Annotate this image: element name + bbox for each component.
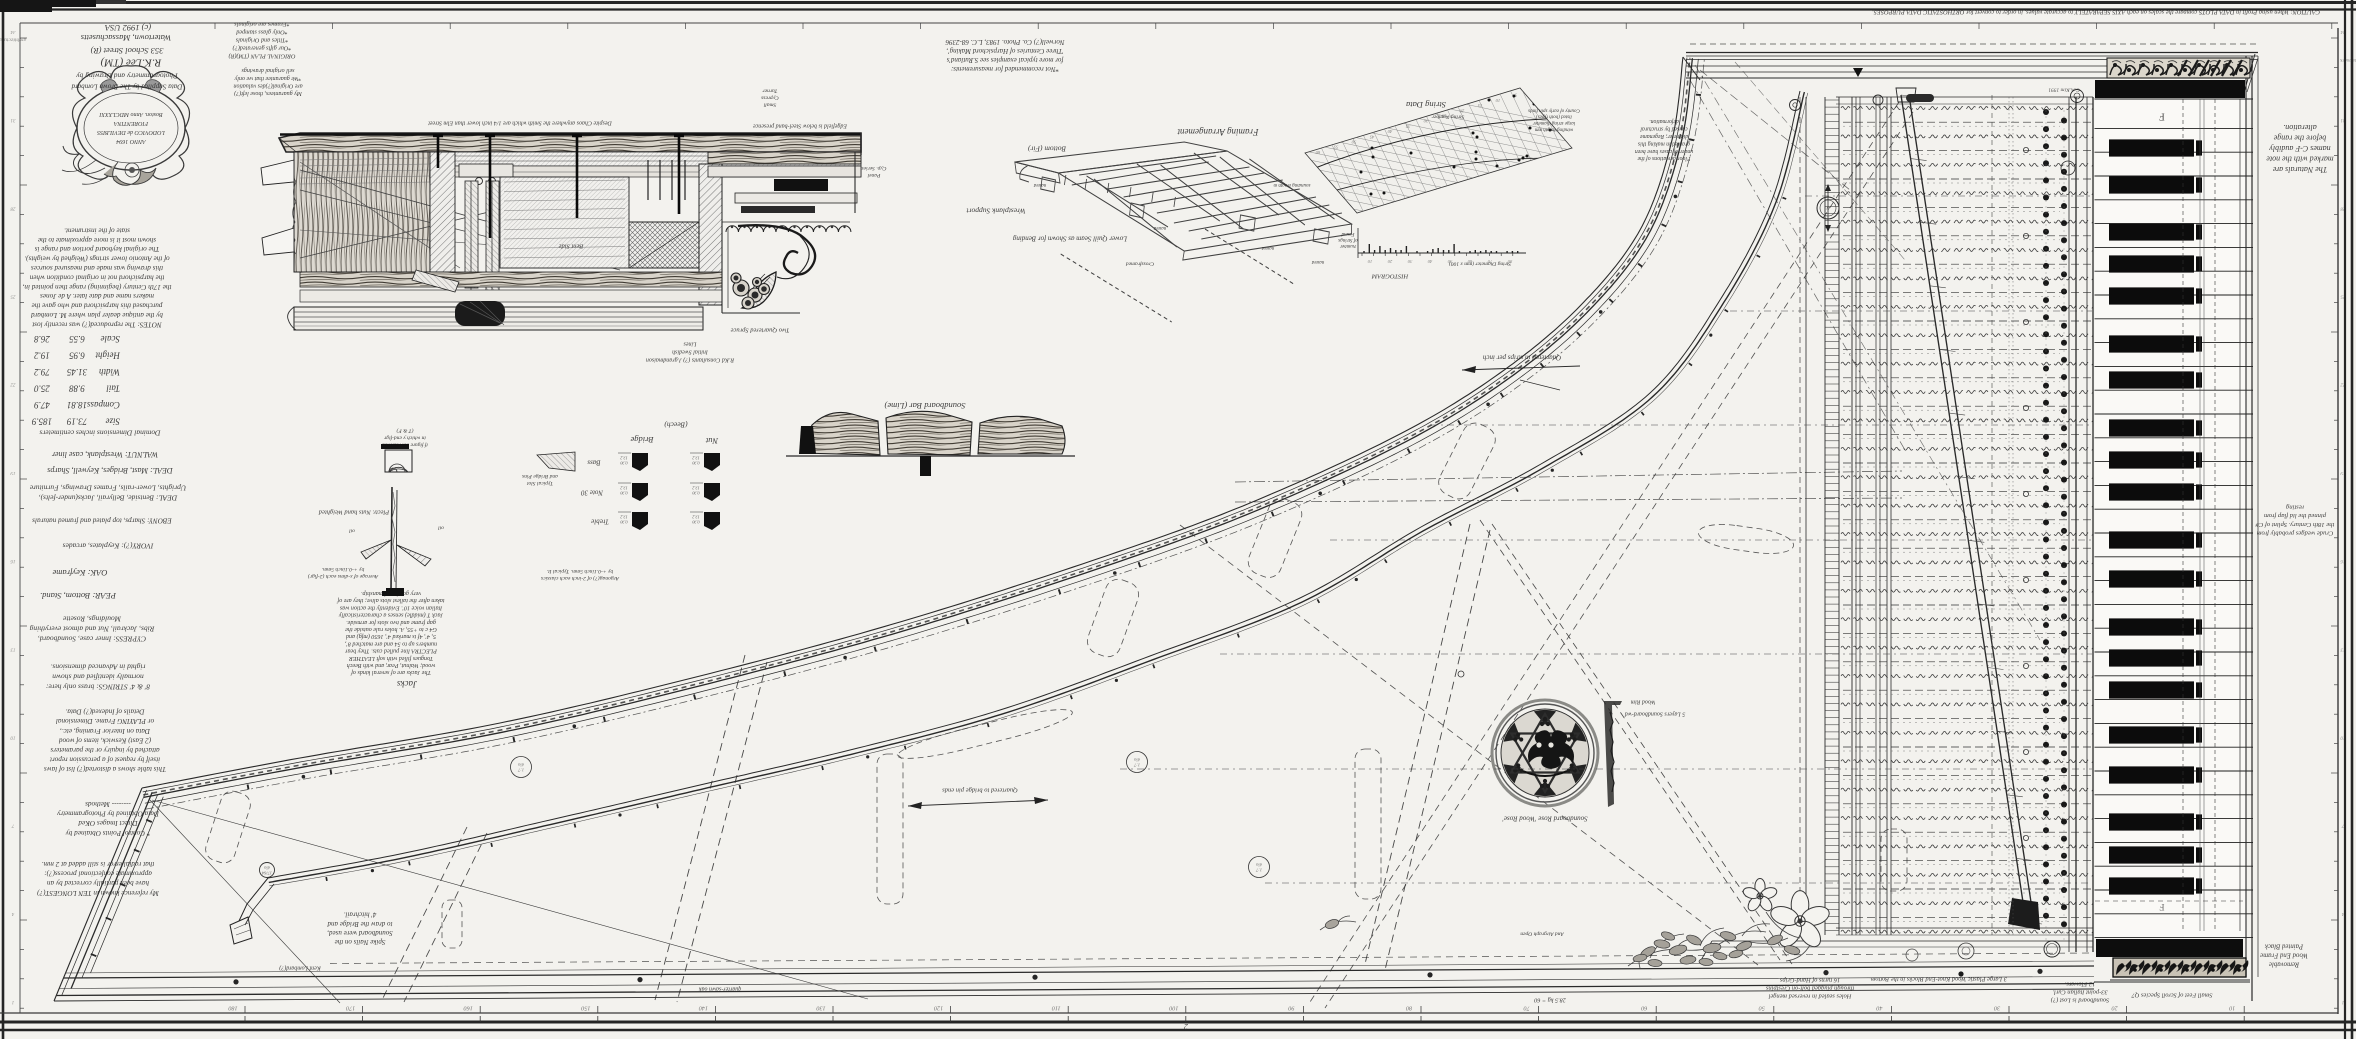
svg-text:R.Kd Consultants (?) J.grandm: R.Kd Consultants (?) J.grandmaison <box>646 357 735 364</box>
svg-text:Tongues filled with soft LEATH: Tongues filled with soft LEATHER <box>349 655 433 662</box>
svg-text:Soundboard were used,: Soundboard were used, <box>327 929 393 937</box>
svg-text:that radial error is still: that radial error is still added at 2 mm… <box>42 860 155 868</box>
svg-text:Cypress: Cypress <box>761 95 779 101</box>
svg-text:R.K.Lee (TM): R.K.Lee (TM) <box>100 56 162 68</box>
svg-text:60: 60 <box>1640 1005 1647 1012</box>
svg-text:Ribs, Jackrail, Nut and almost: Ribs, Jackrail, Nut and almost everythin… <box>29 624 155 633</box>
svg-text:Note 30: Note 30 <box>581 488 604 496</box>
svg-text:dia: dia <box>517 762 524 767</box>
svg-text:12 Flowers.: 12 Flowers. <box>2064 981 2095 988</box>
svg-text:NOTES: The reproduced(?) was: NOTES: The reproduced(?) was recently lo… <box>31 320 163 328</box>
svg-text:10: 10 <box>1367 259 1372 264</box>
svg-text:Wood Rim: Wood Rim <box>1630 699 1655 705</box>
svg-text:large string diameter: large string diameter <box>1533 120 1575 125</box>
svg-text:Bridge: Bridge <box>630 435 653 445</box>
svg-text:Crude wedges probably from: Crude wedges probably from <box>2256 529 2333 536</box>
svg-text:Edgefield is below Steel-band: Edgefield is below Steel-band presence <box>753 123 848 130</box>
svg-text:Small Feet of Scroll Speci: Small Feet of Scroll Species Q7 <box>2131 992 2213 999</box>
svg-text:25: 25 <box>1441 114 1446 119</box>
svg-text:*Frames are originals: *Frames are originals <box>234 21 290 28</box>
svg-text:Lines: Lines <box>683 341 698 347</box>
svg-text:Treble: Treble <box>591 517 609 525</box>
svg-text:LODOVICO de DEVILBISS: LODOVICO de DEVILBISS <box>97 129 166 135</box>
svg-text:Found: Found <box>1341 231 1356 236</box>
svg-text:25.0: 25.0 <box>34 383 50 393</box>
svg-text:Wood End Frame: Wood End Frame <box>2260 951 2308 958</box>
svg-text:before the range: before the range <box>2273 134 2326 143</box>
svg-text:-------- Methods: -------- Methods <box>85 800 131 808</box>
svg-text:nailed: nailed <box>1033 182 1046 187</box>
svg-text:13.2: 13.2 <box>620 486 627 491</box>
svg-text:G.A.Kim 1991: G.A.Kim 1991 <box>2048 87 2080 93</box>
svg-text:Cyp. Series: Cyp. Series <box>861 165 886 171</box>
svg-text:16: 16 <box>2340 558 2346 563</box>
svg-text:13.2: 13.2 <box>620 515 627 520</box>
svg-text:34: 34 <box>2340 29 2346 34</box>
svg-text:makers name and date later. A: makers name and date later. A de Jones <box>40 292 154 300</box>
svg-text:Average of x-dims each (2-figr: Average of x-dims each (2-figr) <box>308 573 379 580</box>
svg-text:40: 40 <box>1875 1005 1882 1012</box>
svg-text:oil: oil <box>349 528 355 534</box>
svg-text:5, 4', 4f is marked 4', 1650 (: 5, 4', 4f is marked 4', 1650 (mfg) and <box>345 633 436 640</box>
svg-text:13.2: 13.2 <box>692 486 699 491</box>
svg-text:50: 50 <box>1447 259 1452 264</box>
svg-text:Crossframed: Crossframed <box>1126 261 1154 268</box>
svg-text:Tail: Tail <box>106 383 120 393</box>
svg-text:28.5 kg = 60: 28.5 kg = 60 <box>1533 997 1566 1004</box>
svg-text:pinned the lid flap from: pinned the lid flap from <box>2264 512 2327 519</box>
svg-text:80: 80 <box>1507 259 1512 264</box>
svg-text:13: 13 <box>2340 646 2346 651</box>
svg-text:under of cases have been: under of cases have been <box>1635 148 1693 155</box>
svg-text:60: 60 <box>1315 150 1320 155</box>
svg-text:normally identified and sho: normally identified and shown <box>52 672 144 681</box>
svg-text:This table shows a distort: This table shows a distorted(?) list of … <box>44 765 166 773</box>
svg-text:Quartered in strips per inch: Quartered in strips per inch <box>1482 353 1561 361</box>
svg-text:180: 180 <box>227 1005 237 1012</box>
svg-text:35: 35 <box>1405 124 1410 129</box>
svg-text:160: 160 <box>463 1005 473 1012</box>
svg-text:40: 40 <box>1387 129 1392 134</box>
svg-text:2: 2 <box>1184 1022 1188 1031</box>
svg-text:20: 20 <box>2111 1005 2118 1012</box>
svg-text:13.2: 13.2 <box>692 456 699 461</box>
svg-text:55: 55 <box>1333 145 1338 150</box>
svg-text:Bass: Bass <box>587 458 601 466</box>
svg-text:names C-F audibly: names C-F audibly <box>2269 144 2331 153</box>
svg-text:are Original(?)des valuation: are Original(?)des valuation <box>233 82 302 89</box>
svg-text:(2 East) Keswick, items of: (2 East) Keswick, items of wood <box>58 736 151 744</box>
svg-text:15: 15 <box>1477 103 1482 108</box>
svg-text:DEAL: Mast, Bridges, Keywell,: DEAL: Mast, Bridges, Keywell, Sharps <box>47 466 174 475</box>
svg-text:to draw the Bridge and: to draw the Bridge and <box>327 920 392 928</box>
svg-text:rightd in Advanced dimensio: rightd in Advanced dimensions. <box>50 662 145 671</box>
svg-text:*Only glass stamped: *Only glass stamped <box>235 29 287 36</box>
svg-text:18.81: 18.81 <box>67 400 87 410</box>
svg-text:String Diameter (mm x 100): String Diameter (mm x 100) <box>1449 261 1511 268</box>
svg-text:30: 30 <box>1407 259 1412 264</box>
svg-text:*Our gifts generated(?): *Our gifts generated(?) <box>233 45 292 52</box>
svg-text:shown most it is more appr: shown most it is more approximate to the <box>37 236 156 244</box>
svg-text:Scale: Scale <box>101 334 121 344</box>
svg-text:and Bridge Pins: and Bridge Pins <box>522 473 558 479</box>
svg-text:120: 120 <box>933 1005 943 1012</box>
svg-text:WALNUT: Wrestplank, case lin: WALNUT: Wrestplank, case liner <box>51 450 158 459</box>
svg-text:Kent Lombard(?): Kent Lombard(?) <box>279 965 322 972</box>
svg-text:Norwell(?) Co. Photo. 1983, L: Norwell(?) Co. Photo. 1983, L.C. 68-2396 <box>945 38 1066 46</box>
svg-text:listed (both types): listed (both types) <box>1536 114 1572 119</box>
svg-text:diameter; Regename: diameter; Regename <box>1640 133 1689 139</box>
svg-text:79.2: 79.2 <box>34 367 50 377</box>
svg-text:Soundboard Bar (Lime): Soundboard Bar (Lime) <box>884 401 965 411</box>
svg-text:Jack T (middle) senses a chara: Jack T (middle) senses a characteristica… <box>339 612 444 619</box>
svg-text:by the antique dealer plan: by the antique dealer plan where M. Lomb… <box>31 311 163 319</box>
svg-text:25: 25 <box>10 293 16 298</box>
svg-text:31.45: 31.45 <box>66 367 88 377</box>
svg-text:FIORENTINA: FIORENTINA <box>114 120 150 126</box>
svg-text:Painted Black: Painted Black <box>2264 943 2304 950</box>
svg-text:taken after the tallest slots: taken after the tallest slots alive; the… <box>336 597 444 604</box>
svg-text:70: 70 <box>1487 259 1492 264</box>
svg-text:9.88: 9.88 <box>69 383 85 393</box>
svg-text:130: 130 <box>815 1005 825 1012</box>
svg-text:50: 50 <box>1351 140 1356 145</box>
svg-text:Bent Side: Bent Side <box>559 243 584 250</box>
svg-text:34: 34 <box>10 29 16 34</box>
svg-text:And Airgraph Open: And Airgraph Open <box>1520 931 1565 937</box>
svg-text:Plectr. Nuts hand Weighted: Plectr. Nuts hand Weighted <box>318 509 390 516</box>
svg-text:28: 28 <box>2340 205 2346 210</box>
svg-text:Despite Chaos anywhere the Smi: Despite Chaos anywhere the Smith which a… <box>428 120 613 127</box>
svg-text:DEAL: Bentside, Bellyrail, Ja: DEAL: Bentside, Bellyrail, Jacks(under-f… <box>39 493 179 502</box>
svg-text:deformation.: deformation. <box>1649 118 1679 125</box>
svg-text:8' & 4' STRINGS: brass only: 8' & 4' STRINGS: brass only here: <box>46 682 150 691</box>
svg-text:* Control Points Obtained: * Control Points Obtained by <box>65 829 151 837</box>
svg-text:10: 10 <box>2340 734 2346 739</box>
svg-text:80: 80 <box>1405 1005 1412 1012</box>
svg-text:sell original drawings: sell original drawings <box>241 67 295 73</box>
svg-text:19: 19 <box>10 470 16 475</box>
svg-text:6.95: 6.95 <box>69 350 85 360</box>
svg-text:EBONY: Sharps, top plated and: EBONY: Sharps, top plated and framed nat… <box>32 516 173 524</box>
svg-text:'Three Centuries of Harpsic: 'Three Centuries of Harpsichord Making', <box>946 47 1064 55</box>
svg-text:140: 140 <box>698 1005 708 1012</box>
svg-text:150: 150 <box>580 1005 590 1012</box>
svg-text:4' hitchrail.: 4' hitchrail. <box>343 911 376 919</box>
svg-text:Boston. Anno MDCLXXXI: Boston. Anno MDCLXXXI <box>98 111 162 117</box>
svg-text:13.2: 13.2 <box>692 515 699 520</box>
svg-text:70: 70 <box>1523 1005 1530 1012</box>
svg-text:Two Quartered Spruce: Two Quartered Spruce <box>730 327 789 334</box>
svg-text:*Titles and Originals: *Titles and Originals <box>235 37 288 44</box>
svg-text:*Not recommended for measur: *Not recommended for measurements: <box>951 65 1059 73</box>
svg-text:resting: resting <box>2285 504 2304 511</box>
svg-text:Direct Images OKed: Direct Images OKed <box>78 819 139 827</box>
svg-text:of Strings: of Strings <box>1338 237 1357 242</box>
svg-text:granted in making this: granted in making this <box>1637 140 1690 146</box>
svg-text:CYPRESS: Inner case, Soundbo: CYPRESS: Inner case, Soundboard, <box>38 634 146 643</box>
svg-text:state of the instrument.: state of the instrument. <box>64 226 130 234</box>
svg-text:ORIGINAL PLAN (TM)(R): ORIGINAL PLAN (TM)(R) <box>229 53 296 60</box>
svg-text:in which y end-figr: in which y end-figr <box>383 435 426 442</box>
svg-text:itself by request of a pe: itself by request of a percussion report <box>49 756 160 764</box>
svg-text:(T & F): (T & F) <box>396 428 413 435</box>
svg-text:Typical Slot: Typical Slot <box>527 480 553 486</box>
svg-text:The original keyboard porti: The original keyboard portion and range … <box>34 245 159 253</box>
svg-text:5 Layers Soundboard-wd: 5 Layers Soundboard-wd <box>1624 711 1685 717</box>
svg-text:attached by inquiry or the: attached by inquiry or the parameters <box>50 746 159 754</box>
svg-text:10: 10 <box>2228 1005 2235 1012</box>
svg-text:Compass: Compass <box>86 400 120 410</box>
svg-text:architectural: architectural <box>0 37 26 43</box>
svg-text:of the Antonio lower strin: of the Antonio lower strings (Weighed by… <box>24 255 170 263</box>
svg-text:F: F <box>2159 111 2165 122</box>
svg-text:110: 110 <box>1051 1005 1061 1012</box>
svg-text:33-point Italian Curl.: 33-point Italian Curl. <box>2052 989 2109 996</box>
svg-text:31: 31 <box>11 117 16 122</box>
svg-text:have been partially correct: have been partially corrected by an <box>47 879 150 887</box>
svg-text:String Number: String Number <box>1431 114 1464 120</box>
svg-text:by +-0.1inch 5mm. Typical It.: by +-0.1inch 5mm. Typical It. <box>547 568 614 574</box>
svg-text:25: 25 <box>2340 293 2346 298</box>
svg-text:nailed: nailed <box>1261 245 1274 250</box>
svg-text:Framing Arrangement: Framing Arrangement <box>1177 127 1260 137</box>
svg-text:19.2: 19.2 <box>34 350 50 360</box>
svg-text:16 turns of Hand-Grips: 16 turns of Hand-Grips <box>1779 977 1840 984</box>
svg-text:Jacks: Jacks <box>397 679 417 689</box>
svg-text:Height: Height <box>95 350 121 360</box>
svg-text:the harpsichord not in origina: the harpsichord not in original conditio… <box>29 273 164 281</box>
svg-text:28: 28 <box>10 205 16 210</box>
svg-text:Number: Number <box>1340 243 1357 248</box>
svg-text:Uprights, Lower-rails, Frames: Uprights, Lower-rails, Frames Drawings, … <box>29 483 186 492</box>
svg-text:Floor deviations of the: Floor deviations of the <box>1637 155 1691 162</box>
svg-text:13.2: 13.2 <box>620 456 627 461</box>
svg-text:13: 13 <box>10 646 16 651</box>
svg-text:purchased this harpsichord and: purchased this harpsichord and who gave … <box>31 302 164 310</box>
svg-text:dia: dia <box>263 865 269 870</box>
svg-text:20: 20 <box>1459 108 1464 113</box>
svg-text:numbers up to 54 and are match: numbers up to 54 and are matched 8', <box>344 640 437 646</box>
svg-text:100: 100 <box>1168 1005 1178 1012</box>
svg-text:this drawing was made and mea: this drawing was made and measured sourc… <box>31 264 163 272</box>
svg-text:Mouldings, Rosette: Mouldings, Rosette <box>62 614 122 623</box>
svg-text:Data Obtained by Photogramm: Data Obtained by Photogrammetry <box>56 810 160 818</box>
svg-text:gap frame and two slots for ar: gap frame and two slots for armside. <box>346 619 436 626</box>
svg-text:Size: Size <box>105 416 120 426</box>
svg-text:Details of Indexed(?) Data.: Details of Indexed(?) Data. <box>65 708 145 716</box>
svg-text:HISTOGRAM: HISTOGRAM <box>1371 273 1409 280</box>
svg-text:or PLAYING Frame. Dimension: or PLAYING Frame. Dimensional <box>56 717 154 725</box>
svg-text:73.19: 73.19 <box>66 416 87 426</box>
svg-text:approximate confectional pro: approximate confectional process(?): <box>44 870 152 878</box>
svg-text:*We guarantee that we only: *We guarantee that we only <box>234 75 301 81</box>
svg-text:16: 16 <box>10 558 16 563</box>
svg-text:19: 19 <box>2340 470 2346 475</box>
svg-text:for more typical examples: for more typical examples see S.Rutland'… <box>946 56 1063 64</box>
svg-text:oil: oil <box>438 525 444 531</box>
svg-text:nailed: nailed <box>1311 259 1324 264</box>
svg-text:1: 1 <box>12 999 15 1004</box>
svg-text:sounding length m: sounding length m <box>1273 182 1310 187</box>
svg-text:Removable: Removable <box>2269 960 2300 967</box>
svg-text:22: 22 <box>10 382 16 387</box>
svg-text:Panel: Panel <box>867 172 881 178</box>
svg-text:the 18th Century. Splint o: the 18th Century. Splint of C# <box>2255 521 2334 528</box>
svg-text:My reference known in TEN: My reference known in TEN LONGEST(?) <box>36 889 159 897</box>
svg-text:Quartered to bridge pin ends: Quartered to bridge pin ends <box>942 787 1018 794</box>
svg-text:alteration.: alteration. <box>2283 123 2317 132</box>
svg-text:County of early spin finds: County of early spin finds <box>1528 107 1580 112</box>
svg-text:10: 10 <box>10 734 16 739</box>
svg-text:Holes sealed in reversed m: Holes sealed in reversed mengel <box>1768 993 1852 1000</box>
svg-text:F: F <box>2159 902 2164 912</box>
svg-text:Watertown, Massachusetts: Watertown, Massachusetts <box>80 33 171 43</box>
svg-text:dia: dia <box>1133 757 1140 762</box>
svg-text:My guarantees, those left(?): My guarantees, those left(?) <box>234 90 303 97</box>
svg-text:Small: Small <box>763 102 776 108</box>
svg-text:quarter-sawn oak: quarter-sawn oak <box>698 986 741 992</box>
svg-text:3 Large Plastic Wood Knot-E: 3 Large Plastic Wood Knot-End Blocks in … <box>1869 976 2008 983</box>
svg-text:Initial Swedish: Initial Swedish <box>672 349 709 355</box>
svg-text:20: 20 <box>1387 259 1392 264</box>
svg-text:through plugged bolt-on Cre: through plugged bolt-on Crestpins <box>1765 985 1854 992</box>
svg-text:1: 1 <box>2342 999 2345 1004</box>
svg-text:wood; Walnut, Pear, and with B: wood; Walnut, Pear, and with Beech <box>347 662 436 668</box>
svg-text:PEAR: Bottom, Stand.: PEAR: Bottom, Stand. <box>40 591 117 601</box>
svg-text:by +-0.1inch 5mm.: by +-0.1inch 5mm. <box>322 566 365 572</box>
svg-text:CAUTION: When using Profit: CAUTION: When using Profit in DATA PLOTS… <box>1872 9 2320 16</box>
svg-text:the 17th Century (beginning) r: the 17th Century (beginning) range then … <box>22 283 171 291</box>
svg-text:47.9: 47.9 <box>34 400 50 410</box>
svg-text:nailed: nailed <box>1153 225 1166 230</box>
svg-text:Lower Quill Seam as Shown for: Lower Quill Seam as Shown for Bending <box>1012 234 1128 242</box>
svg-text:Data on Interior Framing,: Data on Interior Framing, etc., <box>60 727 151 735</box>
svg-text:90: 90 <box>1287 1005 1294 1012</box>
svg-text:Bottom (Fir): Bottom (Fir) <box>1027 144 1066 153</box>
svg-text:ANNO 1694: ANNO 1694 <box>116 138 147 145</box>
svg-text:31: 31 <box>2341 117 2346 122</box>
svg-text:Data Supplied by The Brown Lom: Data Supplied by The Brown Lombard <box>71 82 183 90</box>
svg-text:Dominal Dimensions inches: Dominal Dimensions inches centimeters <box>39 428 161 437</box>
svg-text:10: 10 <box>1495 98 1500 103</box>
svg-text:6.55: 6.55 <box>69 334 85 344</box>
svg-text:winding length mm: winding length mm <box>1534 126 1573 131</box>
svg-text:30: 30 <box>1993 1005 2001 1012</box>
svg-text:Argonag(?) of 2-inch each clas: Argonag(?) of 2-inch each classics <box>541 575 620 582</box>
svg-text:The Jacks are of several kinds: The Jacks are of several kinds of <box>350 669 431 676</box>
svg-text:60: 60 <box>1467 259 1472 264</box>
svg-text:marked with the note: marked with the note <box>2266 155 2334 164</box>
svg-text:Soundboard Rose 'Wood Rose': Soundboard Rose 'Wood Rose' <box>1502 814 1588 822</box>
svg-text:caused by structural: caused by structural <box>1640 126 1688 132</box>
svg-text:N: N <box>1826 205 1831 210</box>
svg-text:Italian voice 10'. Evidently t: Italian voice 10'. Evidently the action … <box>339 604 443 610</box>
svg-text:PLECTRA line pulled cuts.: PLECTRA line pulled cuts. They bear <box>344 648 438 654</box>
svg-text:The Naturals are: The Naturals are <box>2272 165 2327 174</box>
svg-text:45: 45 <box>1369 134 1374 139</box>
svg-text:watermark: watermark <box>2339 57 2356 62</box>
svg-text:Wrestplank Support: Wrestplank Support <box>966 206 1026 215</box>
svg-text:Width: Width <box>98 367 120 377</box>
svg-text:Turner: Turner <box>762 88 778 94</box>
svg-text:Photogrammetry and Drawing by: Photogrammetry and Drawing by <box>76 71 179 80</box>
svg-text:22: 22 <box>2340 382 2346 387</box>
svg-text:26.8: 26.8 <box>34 334 50 344</box>
svg-text:170: 170 <box>345 1005 355 1012</box>
svg-text:(Beech): (Beech) <box>664 420 688 429</box>
svg-text:IVORY(?): Keyplates, arcades: IVORY(?): Keyplates, arcades <box>63 541 155 550</box>
svg-text:String Data: String Data <box>1406 100 1446 110</box>
svg-text:Nut: Nut <box>705 436 719 446</box>
svg-text:Spike Nails on the: Spike Nails on the <box>335 938 386 946</box>
svg-text:40: 40 <box>1427 259 1432 264</box>
svg-text:50: 50 <box>1758 1005 1765 1012</box>
svg-text:353 School Street (R): 353 School Street (R) <box>91 46 165 56</box>
svg-text:Soundboard is Lost (?): Soundboard is Lost (?) <box>2051 997 2110 1004</box>
svg-text:dia: dia <box>1255 862 1262 867</box>
svg-text:185.9: 185.9 <box>31 416 52 426</box>
svg-text:OAK: Keyframe: OAK: Keyframe <box>52 568 107 578</box>
svg-text:(c) 1992 USA: (c) 1992 USA <box>104 23 151 33</box>
svg-text:30: 30 <box>1423 119 1428 124</box>
svg-text:G4 c to +55, A. holes rule out: G4 c to +55, A. holes rule outside the <box>345 626 437 632</box>
